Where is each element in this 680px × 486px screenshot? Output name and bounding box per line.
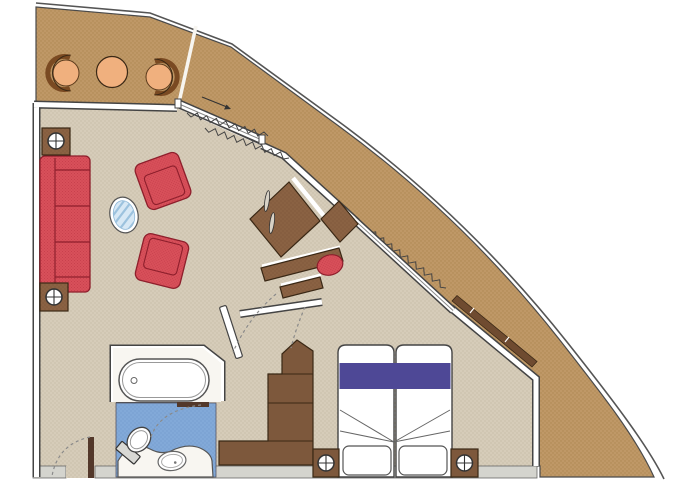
balcony-table (97, 57, 128, 88)
lamp-symbol-icon (318, 455, 334, 471)
bathtub (119, 359, 209, 401)
tub-drain (131, 378, 137, 384)
bed-pillow (399, 446, 447, 475)
lamp-symbol-icon (457, 455, 473, 471)
floor-plan-canvas (0, 0, 680, 486)
bathroom (113, 348, 221, 477)
lamp-symbol-icon (46, 289, 62, 305)
entry-door-leaf (88, 437, 94, 478)
sofa (40, 156, 90, 292)
bed-runner (340, 363, 451, 389)
bed-pillow (343, 446, 391, 475)
floor-plan (0, 0, 680, 486)
lamp-symbol-icon (48, 133, 64, 149)
